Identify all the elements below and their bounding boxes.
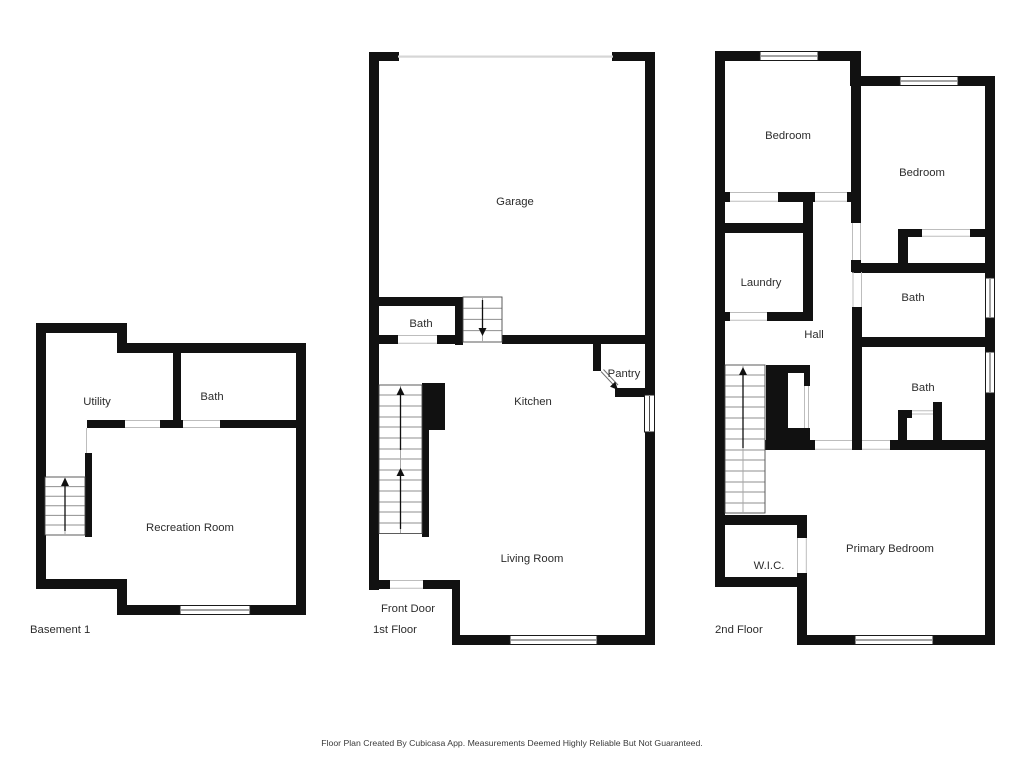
front-door-opening xyxy=(390,581,423,589)
door-opening-bath-upper xyxy=(853,272,862,307)
wall-segment xyxy=(36,323,127,333)
wall-segment xyxy=(797,577,807,645)
room-label-bath-upper: Bath xyxy=(901,292,924,304)
floor-plan-image: Utility Bath Recreation Room Basement 1 xyxy=(0,0,1024,768)
wall-segment xyxy=(847,192,861,202)
wall-segment xyxy=(852,337,994,347)
second-floor-stairs xyxy=(725,365,765,513)
wall-segment xyxy=(502,335,655,344)
wall-segment xyxy=(369,335,398,344)
wall-segment xyxy=(369,580,390,589)
room-label-recreation: Recreation Room xyxy=(146,522,234,534)
living-room-window xyxy=(510,636,597,645)
wall-segment xyxy=(898,410,912,418)
basement-walls xyxy=(36,323,306,615)
room-label-bedroom-left: Bedroom xyxy=(765,130,811,142)
door-opening-laundry xyxy=(730,313,767,321)
door-opening-first-bath xyxy=(398,336,437,344)
wall-segment xyxy=(173,353,181,420)
wall-segment xyxy=(437,335,463,344)
wall-segment xyxy=(852,263,994,273)
wall-segment xyxy=(788,365,810,373)
room-label-pantry: Pantry xyxy=(608,368,641,380)
front-door-label: Front Door xyxy=(381,603,435,615)
room-label-bath-lower: Bath xyxy=(911,382,934,394)
room-label-first-bath: Bath xyxy=(409,318,432,330)
closet-opening-bedroom-right xyxy=(922,230,970,237)
wall-segment xyxy=(804,373,810,386)
kitchen-window xyxy=(645,395,655,432)
shower-opening xyxy=(912,411,933,414)
basement-stairs xyxy=(45,477,85,535)
wall-segment xyxy=(970,229,985,237)
wall-segment xyxy=(767,312,813,321)
bedroom-right-window xyxy=(900,77,958,86)
door-opening-bedroom-left xyxy=(730,193,778,202)
door-opening-primary-from-bath xyxy=(862,441,890,450)
disclaimer-text: Floor Plan Created By Cubicasa App. Meas… xyxy=(321,738,702,748)
wall-segment xyxy=(36,579,127,589)
wall-segment xyxy=(160,420,183,428)
wall-segment xyxy=(933,402,942,442)
room-label-laundry: Laundry xyxy=(741,277,782,289)
room-label-basement-bath: Bath xyxy=(200,391,223,403)
wall-segment xyxy=(766,365,788,443)
wall-segment xyxy=(797,515,807,538)
wall-segment xyxy=(645,52,655,645)
wall-segment xyxy=(220,420,296,428)
bedroom-left-window xyxy=(760,52,818,61)
garage-door xyxy=(398,56,613,58)
floor-label-second: 2nd Floor xyxy=(715,624,763,636)
room-label-hall: Hall xyxy=(804,329,823,341)
door-opening-utility xyxy=(125,421,160,428)
wall-segment xyxy=(715,312,730,321)
wall-segment xyxy=(85,453,92,537)
basement-window xyxy=(180,606,250,615)
wall-segment xyxy=(36,323,46,589)
door-opening-bedroom-right xyxy=(853,223,861,260)
door-opening-basement-bath xyxy=(183,421,220,428)
wall-segment xyxy=(715,192,730,202)
wall-segment xyxy=(898,229,908,263)
primary-bedroom-window xyxy=(855,636,933,645)
room-label-primary: Primary Bedroom xyxy=(846,543,934,555)
wall-segment xyxy=(593,344,601,371)
bath-lower-window xyxy=(986,352,995,393)
floor-label-first: 1st Floor xyxy=(373,624,417,636)
wall-segment xyxy=(852,307,862,447)
wall-segment xyxy=(117,343,306,353)
wall-segment xyxy=(852,440,862,450)
room-label-bedroom-right: Bedroom xyxy=(899,167,945,179)
door-opening-primary-from-hall xyxy=(815,441,852,450)
floor-label-basement: Basement 1 xyxy=(30,624,90,636)
room-label-utility: Utility xyxy=(83,396,111,408)
wall-segment xyxy=(422,430,429,537)
wall-segment xyxy=(720,515,807,525)
bath-upper-window xyxy=(986,278,995,318)
room-label-kitchen: Kitchen xyxy=(514,396,552,408)
wall-segment xyxy=(788,428,810,443)
room-label-living: Living Room xyxy=(501,553,564,565)
first-floor-plan: Garage Bath Kitchen Pantry Living Room F… xyxy=(369,52,655,645)
second-floor-walls xyxy=(715,51,995,645)
wall-segment xyxy=(369,52,379,590)
wall-segment xyxy=(87,420,125,428)
wall-segment xyxy=(296,343,306,615)
second-floor-plan: Bedroom Bedroom Laundry Hall Bath Bath W… xyxy=(715,51,995,645)
wall-segment xyxy=(422,383,445,430)
hall-closet-door xyxy=(805,386,809,428)
room-label-garage: Garage xyxy=(496,196,534,208)
wall-segment xyxy=(715,577,807,587)
basement-floor-plan: Utility Bath Recreation Room Basement 1 xyxy=(30,323,306,636)
hall-opening xyxy=(815,193,847,202)
wall-segment xyxy=(803,192,813,321)
main-stairs-first-floor xyxy=(379,385,422,534)
garage-basement-stairs xyxy=(463,297,502,342)
floor-plan-page: Utility Bath Recreation Room Basement 1 xyxy=(0,0,1024,768)
wall-segment xyxy=(369,297,463,306)
wall-segment xyxy=(715,223,803,233)
door-opening-wic xyxy=(798,538,807,573)
room-label-wic: W.I.C. xyxy=(754,560,785,572)
